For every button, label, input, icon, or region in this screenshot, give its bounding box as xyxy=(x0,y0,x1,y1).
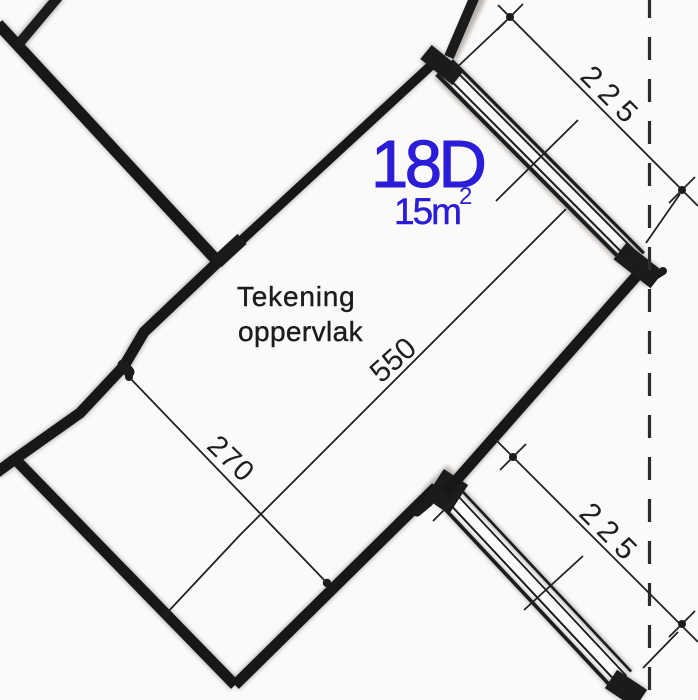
svg-text:oppervlak: oppervlak xyxy=(238,316,364,347)
svg-text:2: 2 xyxy=(459,183,472,210)
svg-text:Tekening: Tekening xyxy=(237,281,355,312)
svg-text:15m: 15m xyxy=(394,191,460,232)
